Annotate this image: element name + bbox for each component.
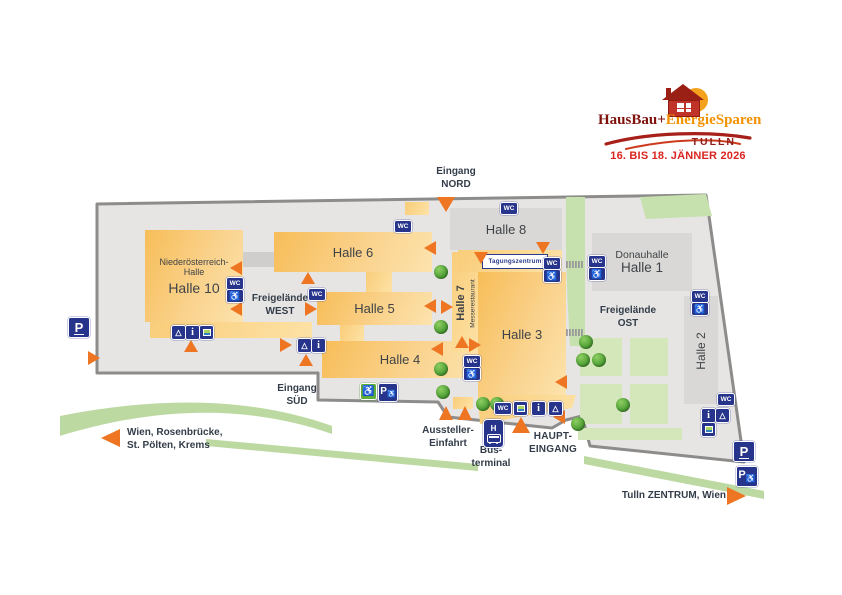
accessible-parking-icon: P♿ bbox=[736, 466, 758, 487]
label-road-east: Tulln ZENTRUM, Wien bbox=[618, 490, 726, 503]
bus-icon bbox=[487, 434, 501, 443]
tree-icon bbox=[616, 398, 630, 412]
hall-donauhalle: Donauhalle Halle 1 bbox=[592, 233, 692, 291]
hall-halle5: Halle 5 bbox=[317, 292, 432, 325]
label-line: WEST bbox=[244, 306, 316, 319]
parking-icon: P bbox=[68, 317, 90, 338]
hall-halle6: Halle 6 bbox=[274, 232, 432, 272]
info-glyph: i bbox=[317, 340, 320, 351]
tent-glyph: △ bbox=[175, 328, 181, 337]
screen-glyph bbox=[705, 426, 713, 433]
info-glyph: i bbox=[537, 403, 540, 414]
brand-part2: EnergieSparen bbox=[666, 112, 762, 128]
tree-icon bbox=[434, 320, 448, 334]
wheelchair-icon: ♿ bbox=[463, 367, 481, 381]
arrow-icon bbox=[301, 272, 315, 284]
wc-icon: WC bbox=[494, 402, 512, 415]
label-line: Eingang bbox=[260, 383, 334, 396]
label-line: EINGANG bbox=[515, 444, 591, 457]
arrow-icon bbox=[441, 300, 453, 314]
label-line: SÜD bbox=[260, 396, 334, 409]
walkway-connector bbox=[243, 252, 275, 267]
parking-glyph: P bbox=[380, 384, 387, 399]
atm-icon bbox=[199, 325, 214, 340]
label-line: Tulln ZENTRUM, Wien bbox=[618, 490, 726, 503]
green-strip-northeast bbox=[640, 194, 712, 219]
wc-text: WC bbox=[504, 205, 515, 212]
bus-terminal-icon: H bbox=[483, 419, 504, 448]
halle1-label: Halle 1 bbox=[621, 260, 663, 275]
tent-icon: △ bbox=[715, 408, 730, 423]
halle4-label: Halle 4 bbox=[380, 352, 420, 367]
label-eingang-sued: Eingang SÜD bbox=[260, 383, 334, 408]
label-line: Eingang bbox=[416, 166, 496, 179]
wheelchair-icon: ♿ bbox=[588, 267, 606, 281]
halle5-label: Halle 5 bbox=[354, 301, 394, 316]
wheelchair-glyph: ♿ bbox=[229, 291, 240, 302]
arrow-icon bbox=[424, 299, 436, 313]
wc-text: WC bbox=[721, 396, 732, 403]
arrow-icon bbox=[455, 336, 469, 348]
label-line: Freigelände bbox=[244, 293, 316, 306]
tree-icon bbox=[434, 265, 448, 279]
hall-halle10: Niederösterreich- Halle Halle 10 bbox=[145, 230, 243, 322]
wheelchair-icon: ♿ bbox=[543, 269, 561, 283]
atm-icon bbox=[701, 422, 716, 437]
label-eingang-nord: Eingang NORD bbox=[416, 166, 496, 191]
house-roof-icon bbox=[662, 84, 704, 100]
label-line: St. Pölten, Krems bbox=[127, 440, 247, 453]
arrow-entrance-north bbox=[437, 197, 455, 212]
tree-icon bbox=[576, 353, 590, 367]
wc-text: WC bbox=[467, 358, 478, 365]
parking-glyph: P bbox=[74, 321, 85, 335]
info-icon: i bbox=[311, 338, 326, 353]
e-mobility-icon: ♿ bbox=[360, 383, 377, 400]
event-date: 16. BIS 18. JÄNNER 2026 bbox=[598, 150, 758, 162]
fairground-map: Halle 8 Donauhalle Halle 1 Halle 2 Niede… bbox=[0, 0, 842, 595]
info-glyph: i bbox=[191, 327, 194, 338]
halle2-label: Halle 2 bbox=[694, 316, 708, 386]
bus-stop-glyph: H bbox=[491, 424, 497, 433]
label-line: terminal bbox=[455, 458, 527, 471]
wc-text: WC bbox=[498, 405, 509, 412]
wc-text: WC bbox=[398, 223, 409, 230]
halle7-label: Halle 7 bbox=[455, 271, 467, 335]
wheelchair-glyph: ♿ bbox=[694, 304, 705, 315]
arrow-exhibitor-gate bbox=[458, 406, 472, 420]
arrow-icon bbox=[431, 342, 443, 356]
tree-icon bbox=[579, 335, 593, 349]
wc-icon: WC bbox=[308, 288, 326, 301]
halle10-prefix2: Halle bbox=[184, 267, 205, 277]
north-entrance-building bbox=[405, 202, 429, 215]
arrow-icon bbox=[280, 338, 292, 352]
info-icon: i bbox=[701, 408, 716, 423]
connector-halle6-halle5 bbox=[366, 272, 392, 292]
hall-halle3: Halle 3 bbox=[478, 272, 566, 397]
wheelchair-icon: ♿ bbox=[226, 289, 244, 303]
parking-glyph: P bbox=[739, 445, 750, 459]
atm-icon bbox=[513, 401, 528, 416]
wc-text: WC bbox=[592, 258, 603, 265]
info-icon: i bbox=[531, 401, 546, 416]
arrow-icon bbox=[88, 351, 100, 365]
tent-icon: △ bbox=[548, 401, 563, 416]
wc-text: WC bbox=[230, 280, 241, 287]
halle3-label: Halle 3 bbox=[502, 327, 542, 342]
halle6-label: Halle 6 bbox=[333, 245, 373, 260]
wc-text: WC bbox=[695, 293, 706, 300]
label-line: NORD bbox=[416, 179, 496, 192]
arrow-icon bbox=[230, 261, 242, 275]
tent-icon: △ bbox=[171, 325, 186, 340]
tent-icon: △ bbox=[297, 338, 312, 353]
label-road-west: Wien, Rosenbrücke, St. Pölten, Krems bbox=[127, 427, 247, 452]
wheelchair-glyph: ♿ bbox=[362, 386, 374, 397]
halle8-label: Halle 8 bbox=[486, 222, 526, 237]
accessible-parking-icon: P♿ bbox=[378, 383, 398, 402]
wheelchair-glyph: ♿ bbox=[387, 390, 396, 399]
label-line: OST bbox=[592, 318, 664, 331]
wheelchair-glyph: ♿ bbox=[591, 269, 602, 280]
wc-text: WC bbox=[312, 291, 323, 298]
tent-glyph: △ bbox=[552, 404, 558, 413]
label-line: Freigelände bbox=[592, 305, 664, 318]
screen-glyph bbox=[517, 405, 525, 412]
connector-halle5-halle4 bbox=[340, 325, 364, 341]
label-haupt-eingang: HAUPT- EINGANG bbox=[515, 431, 591, 456]
parking-icon: P bbox=[733, 441, 755, 462]
label-line: HAUPT- bbox=[515, 431, 591, 444]
wc-icon: WC bbox=[394, 220, 412, 233]
wheelchair-icon: ♿ bbox=[691, 302, 709, 316]
arrow-icon bbox=[469, 338, 481, 352]
arrow-road-east bbox=[727, 487, 746, 505]
tent-glyph: △ bbox=[301, 341, 307, 350]
wc-icon: WC bbox=[717, 393, 735, 406]
brand-part1: HausBau+ bbox=[598, 112, 666, 128]
label-line: Wien, Rosenbrücke, bbox=[127, 427, 247, 440]
arrow-road-west bbox=[101, 429, 120, 447]
tree-icon bbox=[434, 362, 448, 376]
wheelchair-glyph: ♿ bbox=[466, 369, 477, 380]
arrow-icon bbox=[184, 340, 198, 352]
tree-icon bbox=[476, 397, 490, 411]
brand-city: TULLN bbox=[636, 136, 736, 148]
parking-glyph: P bbox=[738, 467, 745, 483]
halle10-label: Halle 10 bbox=[168, 280, 219, 296]
info-icon: i bbox=[185, 325, 200, 340]
label-freigelaende-west: Freigelände WEST bbox=[244, 293, 316, 318]
arrow-icon bbox=[230, 302, 242, 316]
label-line: Aussteller- bbox=[408, 425, 488, 438]
arrow-icon bbox=[536, 242, 550, 254]
arrow-exhibitor-gate bbox=[439, 406, 453, 420]
arrow-icon bbox=[555, 375, 567, 389]
wc-text: WC bbox=[547, 260, 558, 267]
tagungszentrum-label: Tagungszentrum bbox=[488, 258, 541, 265]
wheelchair-glyph: ♿ bbox=[546, 271, 557, 282]
screen-glyph bbox=[203, 329, 211, 336]
wc-icon: WC bbox=[500, 202, 518, 215]
halle7-restaurant-label: Messerestaurant bbox=[470, 259, 477, 349]
tagungszentrum-tag: Tagungszentrum bbox=[482, 254, 548, 269]
wheelchair-glyph: ♿ bbox=[746, 474, 756, 484]
tent-glyph: △ bbox=[719, 411, 725, 420]
arrow-icon bbox=[474, 252, 488, 264]
house-window-icon bbox=[677, 103, 691, 112]
tree-icon bbox=[592, 353, 606, 367]
arrow-entrance-south bbox=[299, 354, 313, 366]
donauhalle-label: Donauhalle bbox=[615, 250, 668, 260]
brand-title: HausBau+EnergieSparen bbox=[598, 112, 758, 128]
info-glyph: i bbox=[707, 410, 710, 421]
arrow-icon bbox=[424, 241, 436, 255]
label-freigelaende-ost: Freigelände OST bbox=[592, 305, 664, 330]
halle10-prefix1: Niederösterreich- bbox=[159, 257, 228, 267]
tree-icon bbox=[571, 417, 585, 431]
tree-icon bbox=[436, 385, 450, 399]
